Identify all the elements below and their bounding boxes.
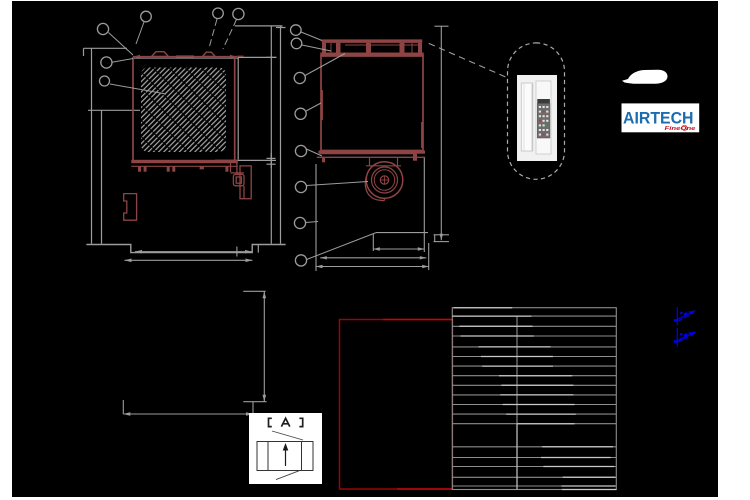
svg-text:FineOne: FineOne (665, 126, 696, 132)
svg-text:AIRTECH: AIRTECH (623, 110, 694, 128)
